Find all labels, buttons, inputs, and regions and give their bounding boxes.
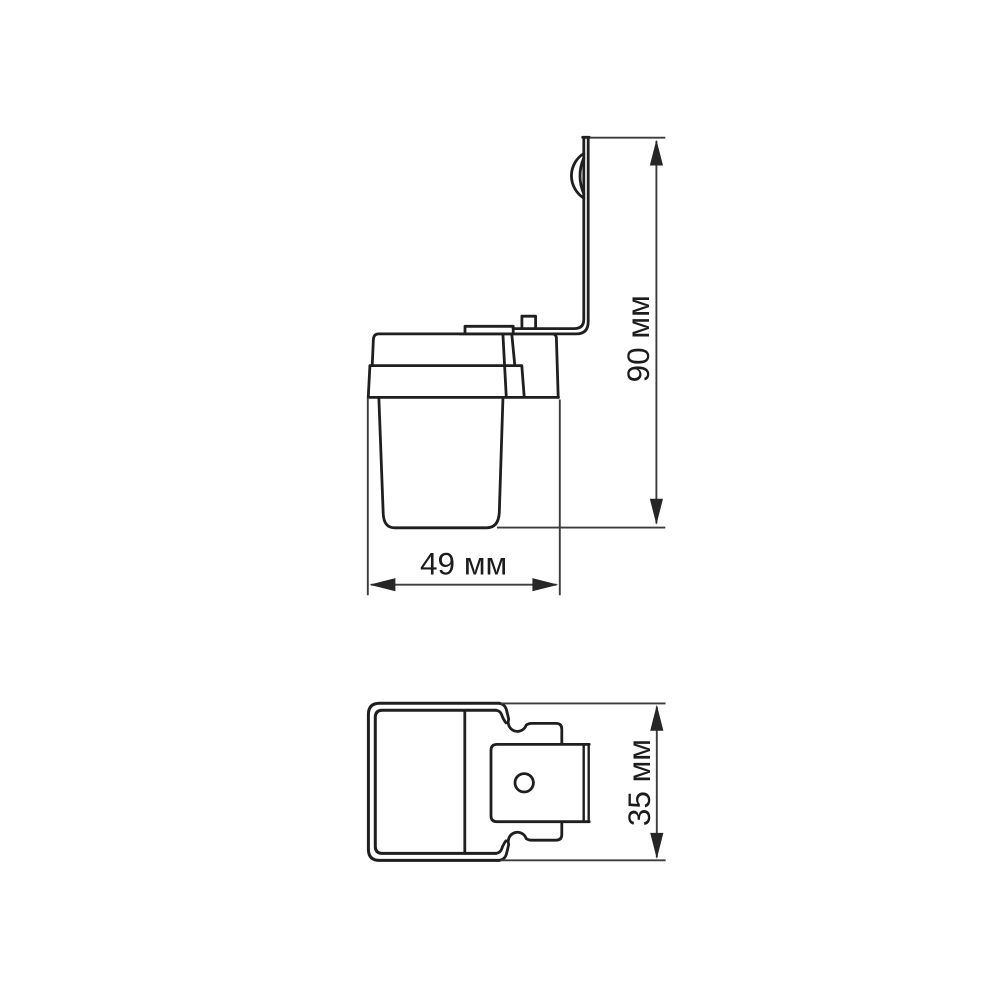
svg-text:35 мм: 35 мм: [621, 739, 657, 826]
svg-text:90 мм: 90 мм: [620, 295, 656, 382]
svg-text:49 мм: 49 мм: [420, 546, 507, 582]
